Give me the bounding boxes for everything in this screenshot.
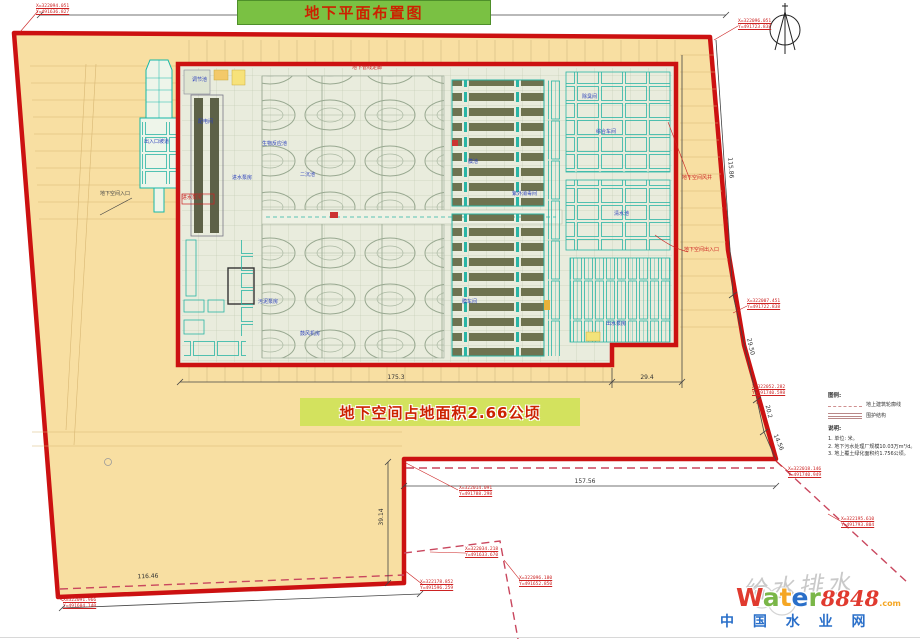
bottom-divider bbox=[0, 637, 920, 638]
page-title: 地下平面布置图 bbox=[237, 0, 491, 25]
site-entrance-label: 地下空间入口 bbox=[100, 192, 130, 197]
site-plan-page: 175.3 29.4 157.56 39.14 116.46 115.86 29… bbox=[0, 0, 920, 639]
dashed-line-swatch bbox=[828, 406, 862, 407]
room-label: 鼓风机房 bbox=[300, 332, 320, 337]
coord-label: X=322195.610Y=491793.804 bbox=[841, 517, 874, 528]
svg-text:29.4: 29.4 bbox=[640, 374, 654, 381]
svg-text:39.14: 39.14 bbox=[378, 508, 385, 525]
legend: 图例: 地上建筑轮廓线 围护结构 说明: 1. 单位: 米。 2. 地下污水处理… bbox=[828, 392, 920, 459]
coord-label: X=322091.966Y=491604.140 bbox=[63, 598, 96, 609]
monitor-label: 进水泵房 bbox=[182, 196, 202, 201]
svg-text:115.86: 115.86 bbox=[726, 157, 734, 179]
multi-line-swatch bbox=[828, 412, 862, 421]
room-label: 配电间 bbox=[198, 120, 213, 125]
room-label: 污泥泵房 bbox=[258, 300, 278, 305]
room-label: 综合车间 bbox=[596, 130, 616, 135]
watermark-cn-text: 中 国 水 业 网 bbox=[720, 611, 873, 631]
legend-item: 地上建筑轮廓线 bbox=[828, 402, 920, 410]
room-label: 紫外消毒间 bbox=[512, 192, 537, 197]
room-label: 进水泵房 bbox=[232, 176, 252, 181]
site-exit-label: 地下空间出入口 bbox=[684, 248, 719, 253]
svg-text:116.46: 116.46 bbox=[137, 573, 158, 581]
note-item: 1. 单位: 米。 bbox=[828, 436, 920, 444]
coord-label: X=322178.852Y=491596.259 bbox=[420, 580, 453, 591]
grid-above-plant bbox=[182, 40, 676, 64]
coord-label: X=322018.146Y=491740.949 bbox=[788, 467, 821, 478]
vent-shaft-label: 地下空间风井 bbox=[682, 176, 712, 181]
note-item: 3. 地上覆土绿化面积约1.756公顷。 bbox=[828, 451, 920, 459]
coord-label: X=322052.282Y=491740.598 bbox=[752, 385, 785, 396]
room-label: 二沉池 bbox=[300, 173, 315, 178]
svg-text:175.3: 175.3 bbox=[387, 374, 404, 381]
watermark: 给水排水 Water8848.com 中 国 水 业 网 bbox=[708, 575, 918, 635]
legend-heading: 图例: bbox=[828, 392, 920, 400]
coord-label: X=322034.218Y=491633.670 bbox=[465, 547, 498, 558]
room-label: 地下管线走廊 bbox=[352, 66, 382, 71]
notes-list: 1. 单位: 米。 2. 地下污水处理厂规模10.03万m³/d。 3. 地上覆… bbox=[828, 436, 920, 459]
coord-label: X=322007.451Y=491722.838 bbox=[747, 299, 780, 310]
watermark-logo-text: Water8848.com bbox=[736, 583, 901, 612]
room-label: 出水泵房 bbox=[606, 322, 626, 327]
coord-label: X=322096.180Y=491652.850 bbox=[519, 576, 552, 587]
legend-item: 围护结构 bbox=[828, 412, 920, 421]
coord-label: X=322096.051Y=491723.838 bbox=[738, 19, 771, 30]
room-label: 膜池 bbox=[468, 160, 478, 165]
room-label: 清水池 bbox=[614, 212, 629, 217]
coord-label: X=322014.091Y=491788.298 bbox=[459, 486, 492, 497]
legend-item-label: 围护结构 bbox=[866, 413, 886, 421]
notes-heading: 说明: bbox=[828, 425, 920, 433]
north-arrow-icon bbox=[770, 3, 800, 54]
room-label: 调节池 bbox=[192, 78, 207, 83]
room-label: 膜车间 bbox=[462, 300, 477, 305]
room-label: 出入口坡道 bbox=[144, 140, 169, 145]
note-item: 2. 地下污水处理厂规模10.03万m³/d。 bbox=[828, 444, 920, 452]
site-plan-svg: 175.3 29.4 157.56 39.14 116.46 115.86 29… bbox=[0, 0, 920, 639]
legend-item-label: 地上建筑轮廓线 bbox=[866, 402, 901, 410]
coord-label: X=322094.051Y=491636.827 bbox=[36, 4, 69, 15]
room-label: 生物反应池 bbox=[262, 142, 287, 147]
svg-text:157.56: 157.56 bbox=[575, 478, 596, 485]
room-label: 除臭间 bbox=[582, 95, 597, 100]
area-label: 地下空间占地面积2.66公顷 bbox=[300, 398, 580, 426]
